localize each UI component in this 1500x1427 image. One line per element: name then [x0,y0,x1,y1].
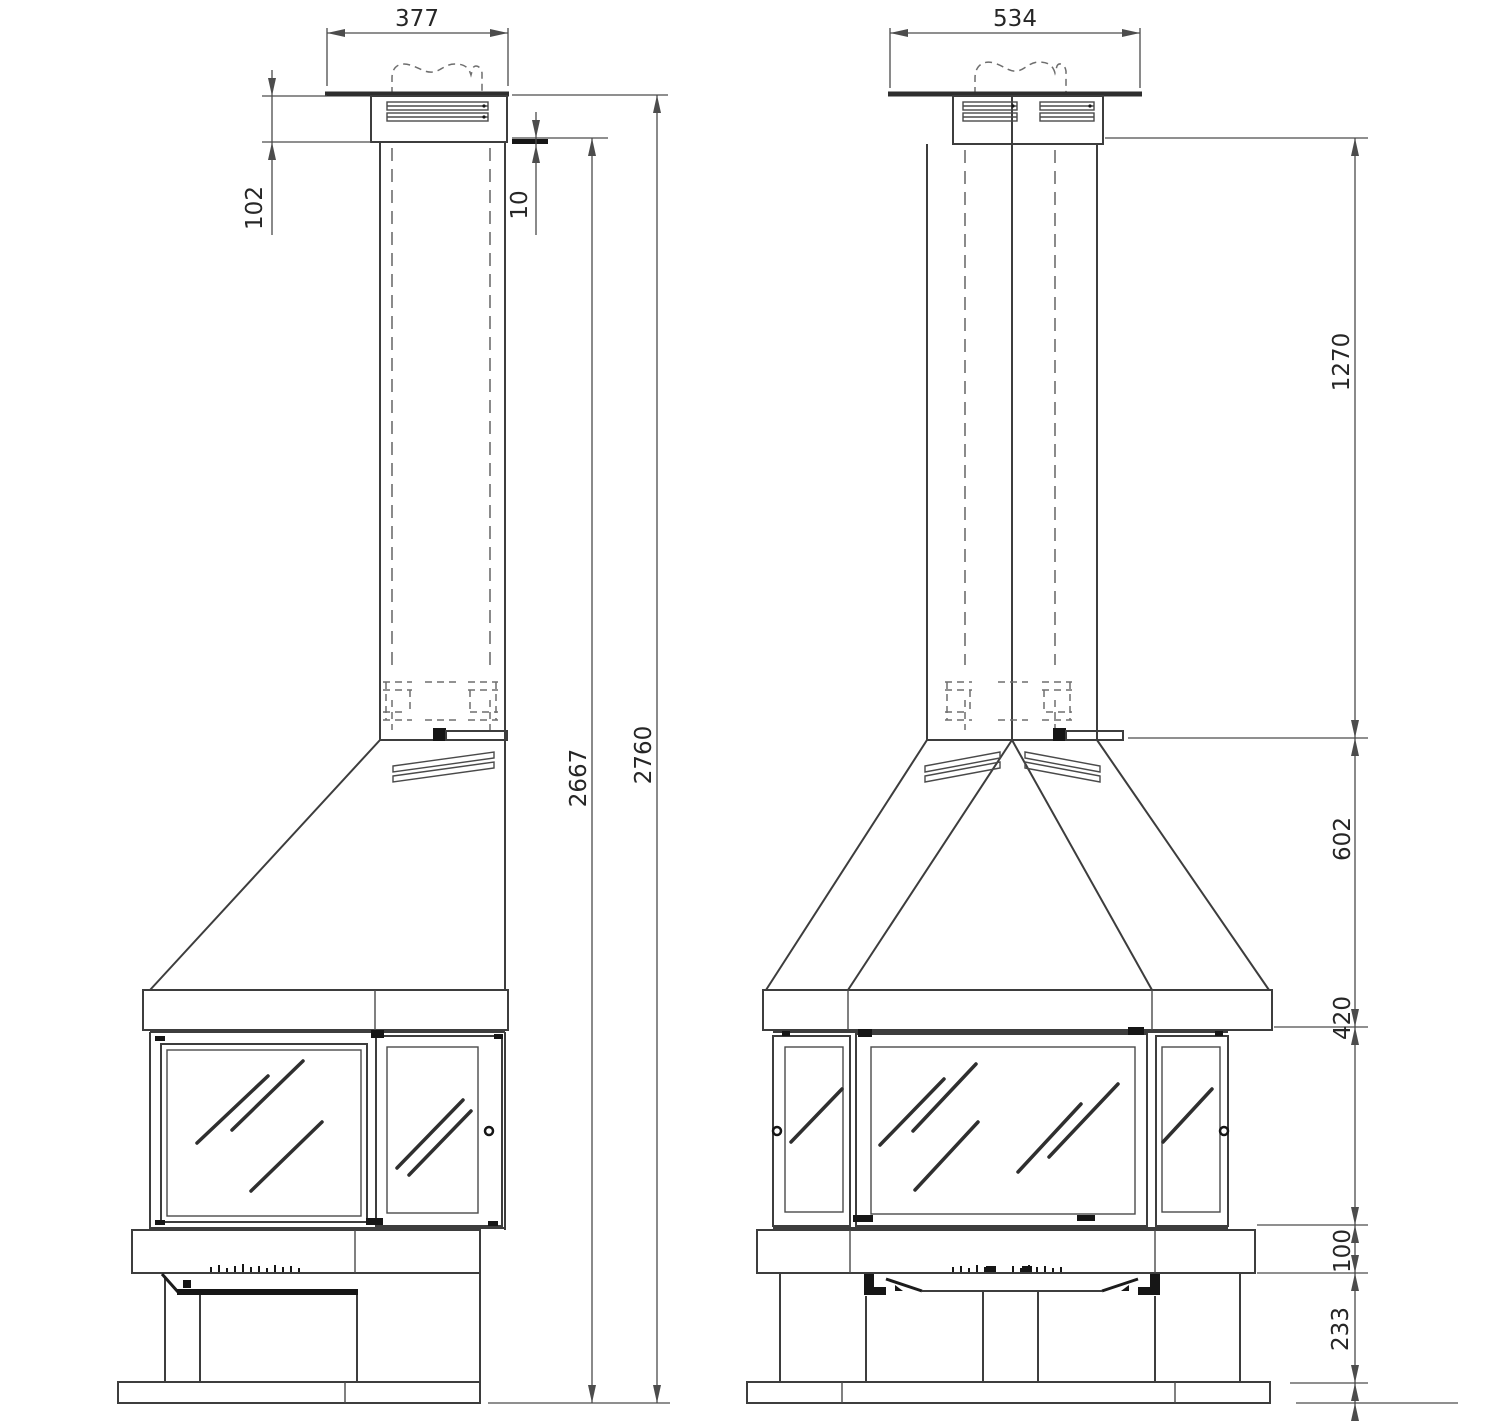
dim-label-total-height: 2760 [631,726,657,785]
side-chimney [380,142,505,990]
side-dimensions: 377 102 10 2667 2760 [242,6,670,1403]
front-firebox [773,1027,1228,1228]
dim-label-top-width: 534 [993,6,1037,32]
front-chimney [927,144,1097,740]
damper-handle [1053,728,1123,741]
right-side-glass-panel [1156,1036,1228,1226]
cap-dashed-top-profile [392,64,482,94]
dim-label-plinth-height: 233 [1328,1307,1354,1351]
door-knob [485,1127,493,1135]
front-shelf [757,1230,1255,1273]
dim-label-shelf-height: 100 [1330,1229,1356,1273]
dim-label-height-without-cap: 2667 [566,749,592,808]
side-plinth [162,1264,480,1382]
cap-louver-vents [963,102,1094,121]
hood-front-slope [150,740,380,990]
front-hood [763,740,1272,1030]
dim-label-chimney-height: 1270 [1329,333,1355,392]
ash-pan-lever [162,1274,358,1295]
side-damper-hidden-detail [383,682,507,741]
front-view: 534 1270 602 420 10 [747,6,1458,1421]
ash-pan-mechanism [864,1274,1160,1295]
side-chimney-cap [325,64,509,142]
side-view: 377 102 10 2667 2760 [118,6,670,1403]
front-chimney-cap [888,62,1142,144]
drawing-canvas: 377 102 10 2667 2760 [0,0,1500,1427]
dim-label-cap-height: 102 [242,186,268,230]
fireplace-technical-drawing: 377 102 10 2667 2760 [0,0,1500,1427]
panel-knob [1220,1127,1228,1135]
front-dimensions: 534 1270 602 420 10 [890,6,1458,1421]
cap-body [371,96,507,142]
dim-label-top-width: 377 [395,6,439,32]
cap-dashed-top-profile [975,62,1066,94]
glass-reflection-lines [197,1061,322,1191]
side-glass-panel [161,1044,367,1222]
side-hood [143,740,508,1030]
side-hinges [155,1030,503,1226]
hood-vent-slots [925,752,1100,782]
grate-teeth [211,1264,299,1272]
dim-label-hood-height: 602 [1330,817,1356,861]
side-door [376,1036,502,1226]
front-base-slab [747,1382,1270,1403]
dim-label-cap-overlap: 10 [507,190,533,219]
hood-bottom-band [143,990,508,1030]
panel-knob [773,1127,781,1135]
side-base-slab [118,1382,480,1403]
cap-louver-vents [387,102,488,121]
glass-reflection-lines [397,1100,471,1175]
front-plinth [780,1265,1240,1382]
hood-vent-slots [393,752,494,782]
left-side-glass-panel [773,1036,850,1226]
hood-bottom-band [763,990,1272,1030]
side-firebox [150,1030,505,1230]
cap-body [953,96,1103,144]
damper-handle [433,728,507,741]
center-glass-door [856,1034,1147,1226]
glass-reflection-lines [880,1064,1118,1190]
dim-label-firebox-height: 420 [1330,996,1356,1040]
side-shelf [132,1230,480,1273]
grate-teeth [953,1265,1061,1272]
